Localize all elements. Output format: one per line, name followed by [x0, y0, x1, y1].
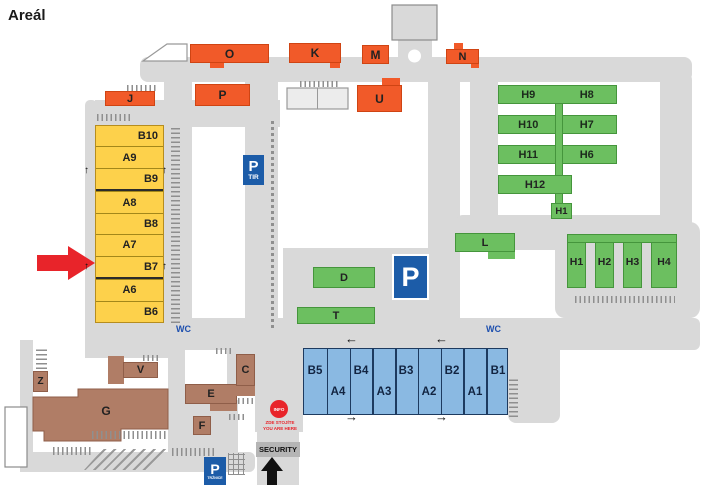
- parking-entrance-sign: P TRŽNICE: [204, 457, 226, 485]
- hall-k: K: [289, 43, 341, 63]
- hall-row-b8: B8: [96, 213, 163, 234]
- hall-h12: H12: [498, 175, 572, 194]
- hall-h9-h8: H9 H8: [498, 85, 617, 104]
- parking-strip: [575, 296, 675, 303]
- hall-h8-label: H8: [558, 86, 617, 103]
- up-arrow-icon: ↑: [162, 261, 167, 272]
- info-badge: INFO: [270, 400, 288, 418]
- hall-row-b7: B7: [96, 256, 163, 279]
- section-a1: A1: [464, 386, 486, 398]
- section-b1: B1: [487, 365, 509, 377]
- hall-u: U: [357, 85, 402, 112]
- road-h-west: [470, 75, 498, 215]
- right-arrow-icon: →: [345, 409, 358, 424]
- section-divider: [441, 349, 443, 414]
- yellow-hall-block: B10 A9 B9 A8 B8 A7 B7 A6 B6: [95, 125, 164, 323]
- hall-comb-h3-label: H3: [622, 255, 643, 269]
- parking-strip: [92, 431, 168, 439]
- hall-h7-label: H7: [558, 116, 617, 133]
- parking-strip: [97, 114, 133, 121]
- hall-comb-h1-label: H1: [566, 255, 587, 269]
- section-divider: [350, 349, 352, 414]
- hall-j-label: J: [127, 93, 133, 105]
- hall-row-a9: A9: [96, 146, 163, 167]
- section-divider: [395, 349, 397, 414]
- hall-comb-h2-label: H2: [594, 255, 615, 269]
- hall-d: D: [313, 267, 375, 288]
- page-title: Areál: [8, 7, 46, 24]
- parking-strip: [143, 355, 160, 361]
- hall-row-a7: A7: [96, 234, 163, 255]
- hall-h10-label: H10: [499, 116, 558, 133]
- building-z: Z: [33, 371, 48, 392]
- parking-entrance-caption: TRŽNICE: [207, 477, 222, 481]
- parking-tir-caption: TIR: [248, 175, 258, 182]
- parking-strip: [172, 448, 215, 456]
- section-divider: [463, 349, 465, 414]
- you-are-here-text: ZDE STOJÍTE YOU ARE HERE: [250, 420, 310, 432]
- building-v: V: [123, 362, 158, 378]
- hall-row-a6: A6: [96, 279, 163, 300]
- hall-l: L: [455, 233, 515, 252]
- parking-main-sign: P: [394, 256, 427, 298]
- section-divider: [372, 349, 374, 414]
- hall-p-label: P: [218, 88, 226, 102]
- parking-p-symbol: P: [210, 462, 219, 476]
- parking-strip: [300, 81, 340, 87]
- hall-n: N: [446, 49, 479, 64]
- section-divider: [486, 349, 488, 414]
- parking-p-symbol: P: [401, 264, 419, 291]
- security-booth: SECURITY: [256, 442, 300, 457]
- building-c-base: [227, 385, 255, 396]
- hall-n-label: N: [459, 51, 467, 63]
- up-arrow-icon: ↑: [162, 165, 167, 176]
- up-arrow-icon: ↑: [84, 165, 89, 176]
- parking-strip: [238, 398, 253, 404]
- parking-strip-vertical: [171, 127, 180, 323]
- road-security-corridor: [257, 430, 299, 485]
- hall-j: J: [105, 91, 155, 106]
- blue-hall-block: B5 A4 B4 A3 B3 A2 B2 A1 B1: [303, 348, 508, 415]
- hall-row-b10: B10: [96, 126, 163, 146]
- left-arrow-icon: ←: [435, 331, 448, 346]
- parking-tir-sign: P TIR: [243, 155, 264, 185]
- section-b4: B4: [350, 365, 372, 377]
- building-g-label: G: [92, 403, 120, 419]
- parking-strip: [127, 85, 157, 91]
- parking-grid: [228, 453, 245, 475]
- hall-row-b9: B9: [96, 168, 163, 191]
- section-b3: B3: [395, 365, 417, 377]
- building-gray-north: [392, 5, 437, 40]
- right-arrow-icon: →: [435, 409, 448, 424]
- left-arrow-icon: ←: [345, 331, 358, 346]
- hall-h11-label: H11: [499, 146, 558, 163]
- building-outline-southwest: [5, 407, 27, 467]
- parking-strip: [53, 447, 92, 455]
- building-hatched-center: [287, 88, 348, 109]
- parking-strip: [229, 414, 247, 420]
- up-arrow-icon: ↑: [84, 261, 89, 272]
- site-map: Areál J O K M N P U B10 A9 B9 A8 B8 A7 B…: [0, 0, 701, 485]
- hall-u-label: U: [375, 92, 384, 106]
- section-a3: A3: [373, 386, 395, 398]
- road-v-area: [85, 330, 185, 358]
- hall-m: M: [362, 45, 389, 64]
- hall-m-label: M: [371, 48, 381, 62]
- fence-line: [271, 118, 274, 328]
- parking-p-symbol: P: [248, 159, 258, 174]
- hall-p: P: [195, 84, 250, 106]
- hall-o-label: O: [225, 47, 234, 61]
- wc-label-left: WC: [176, 324, 191, 334]
- building-c: C: [236, 354, 255, 386]
- hall-h1-small: H1: [551, 203, 572, 219]
- hall-row-a8: A8: [96, 191, 163, 212]
- parking-strip-vertical: [509, 377, 518, 417]
- roundabout: [408, 50, 421, 63]
- hall-comb-h4-label: H4: [652, 255, 676, 269]
- section-divider: [327, 349, 329, 414]
- section-b5: B5: [304, 365, 326, 377]
- section-a2: A2: [418, 386, 440, 398]
- entrance-ramp: [143, 44, 187, 61]
- parking-strip-vertical: [36, 349, 47, 369]
- hall-h9-label: H9: [499, 86, 558, 103]
- building-f: F: [193, 416, 211, 435]
- hall-k-label: K: [311, 46, 320, 60]
- building-v-west: [108, 356, 124, 384]
- section-b2: B2: [441, 365, 463, 377]
- hall-row-b6: B6: [96, 301, 163, 322]
- section-divider: [418, 349, 420, 414]
- hall-comb-top-strip: [567, 234, 677, 243]
- parking-strip: [216, 348, 233, 354]
- hall-t: T: [297, 307, 375, 324]
- hall-o: O: [190, 44, 269, 63]
- wc-label-right: WC: [486, 324, 501, 334]
- hall-h6-label: H6: [558, 146, 617, 163]
- section-a4: A4: [327, 386, 349, 398]
